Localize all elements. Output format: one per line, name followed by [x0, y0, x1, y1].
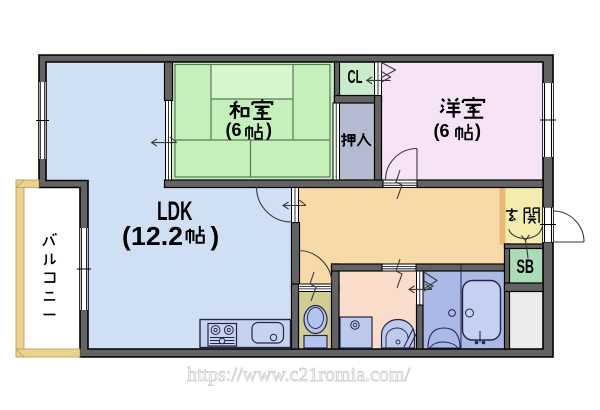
- svg-text:CL: CL: [348, 67, 363, 87]
- svg-text:(6: (6: [226, 120, 242, 140]
- svg-text:https://www.c21romia.com/: https://www.c21romia.com/: [187, 364, 410, 386]
- svg-text:12.2: 12.2: [131, 221, 183, 251]
- svg-text:): ): [475, 121, 481, 141]
- svg-text:(6: (6: [434, 121, 450, 141]
- svg-text:): ): [211, 221, 220, 251]
- svg-text:(: (: [122, 221, 131, 251]
- svg-text:SB: SB: [517, 257, 535, 278]
- svg-text:): ): [266, 120, 272, 140]
